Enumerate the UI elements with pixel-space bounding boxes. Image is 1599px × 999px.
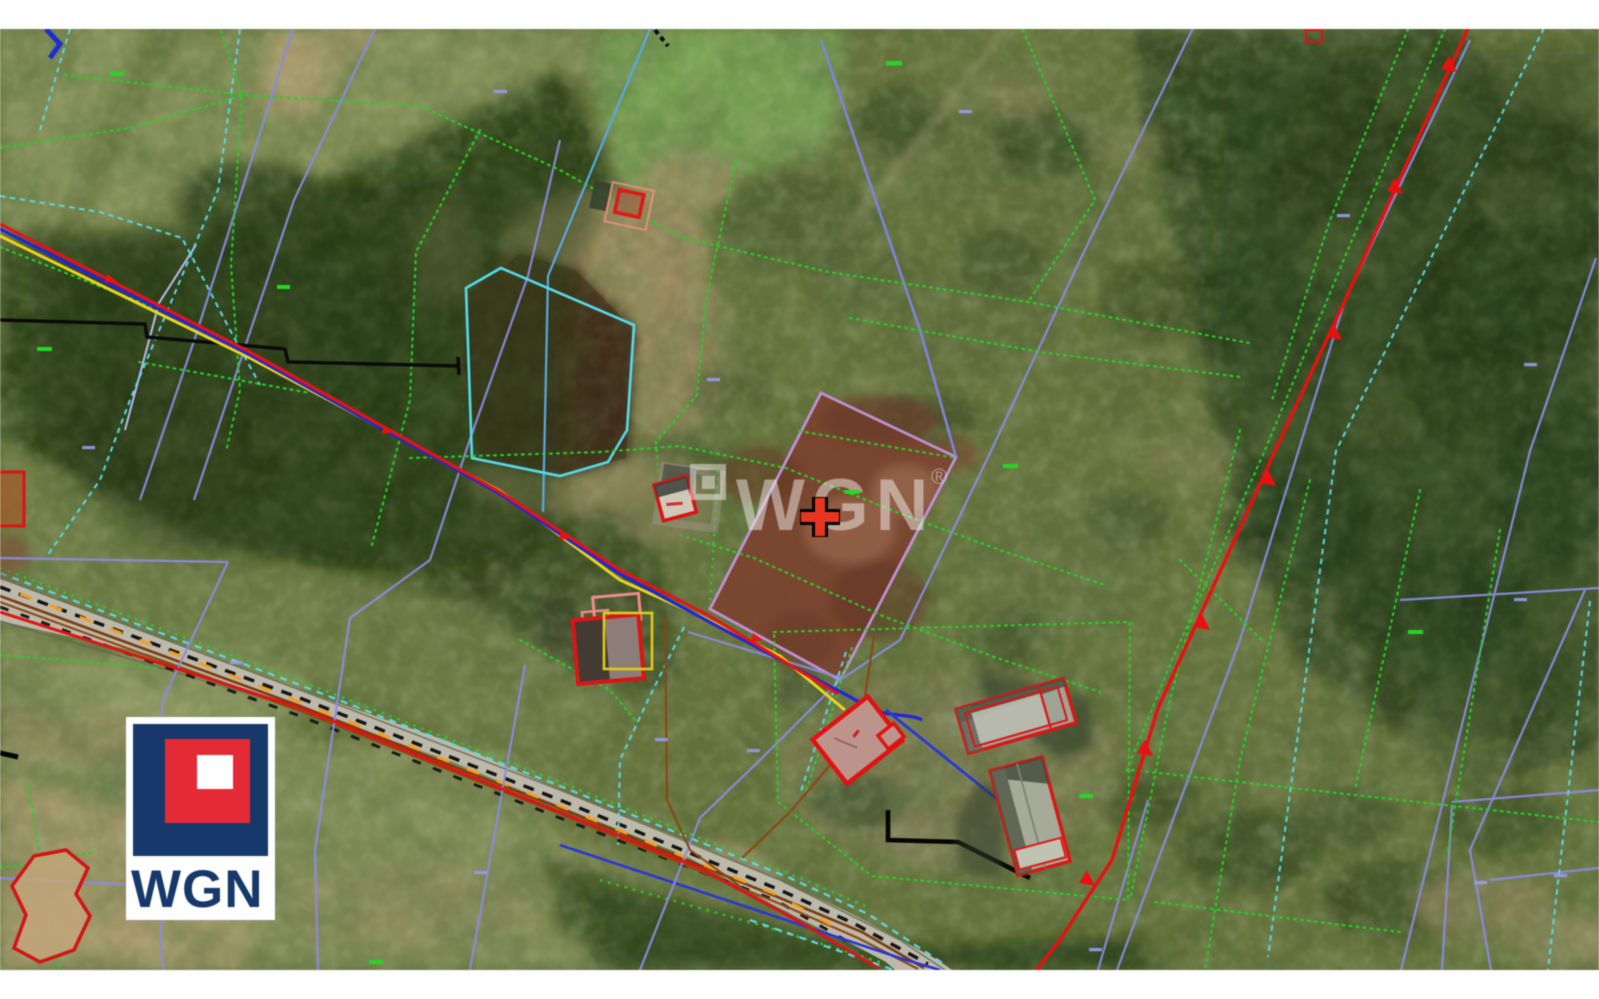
svg-text:WGN: WGN bbox=[131, 860, 264, 919]
svg-text:WGN: WGN bbox=[736, 465, 935, 546]
svg-text:®: ® bbox=[931, 464, 947, 489]
